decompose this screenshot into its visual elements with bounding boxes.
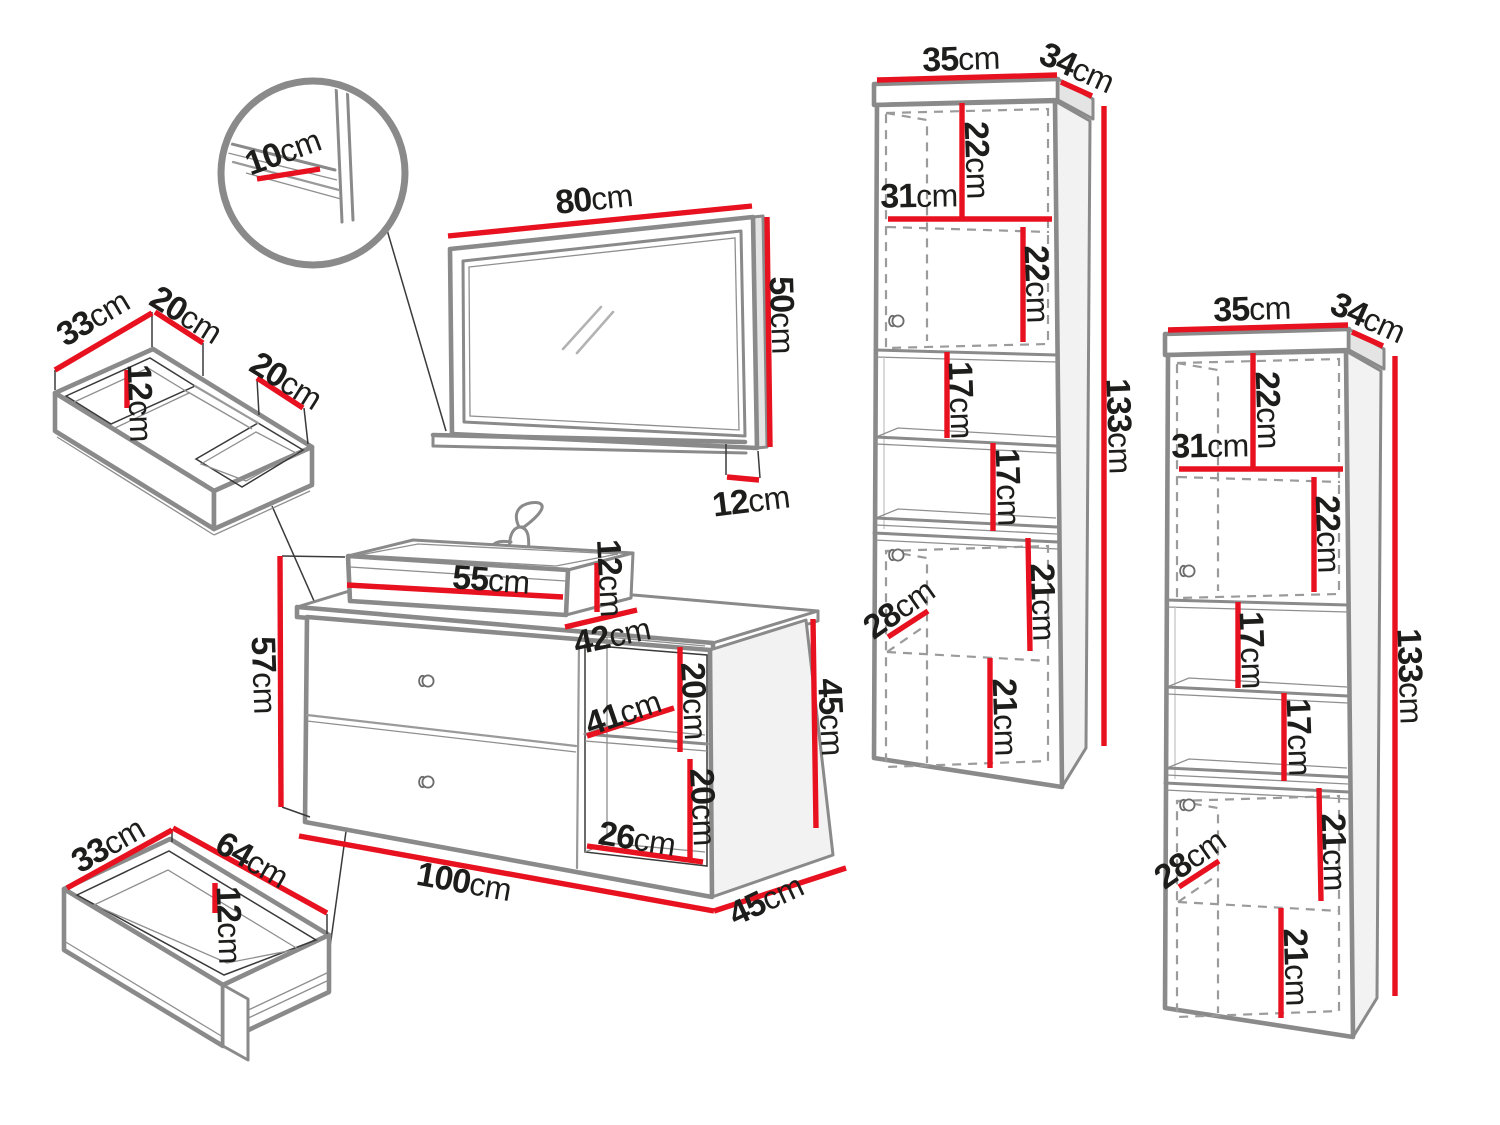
dim-label-tall-cabinet-2-open-shelf-height-1: 17cm xyxy=(1232,611,1273,690)
dim-label-tall-cabinet-1-inner-width: 31cm xyxy=(880,176,958,215)
dim-label-vanity-basin-width: 55cm xyxy=(451,558,531,601)
dim-label-tall-cabinet-1-height: 133cm xyxy=(1098,378,1139,475)
dim-label-vanity-upper-shelf-height: 20cm xyxy=(673,661,715,740)
dim-label-drawer-height: 12cm xyxy=(209,886,250,965)
dim-label-tall-cabinet-1-width: 35cm xyxy=(922,39,1001,80)
dim-label-vanity-total-height: 57cm xyxy=(244,636,285,715)
dim-label-tall-cabinet-1-open-shelf-height-1: 17cm xyxy=(941,361,982,440)
dim-label-mirror-height: 50cm xyxy=(762,276,803,355)
detail-callout-circle xyxy=(220,81,405,265)
dim-label-tall-cabinet-1-open-shelf-height-2: 17cm xyxy=(988,448,1029,527)
dim-label-corner-drawer-height: 12cm xyxy=(120,364,161,443)
dim-label-tall-cabinet-2-top-shelf-height: 22cm xyxy=(1248,371,1289,450)
dim-label-vanity-basin-height: 12cm xyxy=(589,538,631,617)
dim-label-tall-cabinet-1-lower-shelf-height-1: 21cm xyxy=(1023,563,1064,642)
dim-label-tall-cabinet-1-second-shelf-height: 22cm xyxy=(1017,245,1058,324)
dim-label-vanity-lower-shelf-height: 20cm xyxy=(682,767,724,846)
dim-label-vanity-side-height: 45cm xyxy=(810,677,852,756)
dim-label-tall-cabinet-1-top-shelf-height: 22cm xyxy=(957,121,998,200)
dim-label-tall-cabinet-2-lower-shelf-height-1: 21cm xyxy=(1314,813,1355,892)
dim-label-tall-cabinet-2-width: 35cm xyxy=(1213,289,1292,330)
furniture-dimension-diagram: 10cm80cm50cm12cm33cm20cm12cm20cm33cm64cm… xyxy=(0,0,1500,1125)
dim-label-tall-cabinet-2-height: 133cm xyxy=(1389,628,1430,725)
dim-label-tall-cabinet-2-lower-shelf-height-2: 21cm xyxy=(1276,928,1317,1007)
diagram-canvas: 10cm80cm50cm12cm33cm20cm12cm20cm33cm64cm… xyxy=(0,0,1500,1125)
dim-label-tall-cabinet-2-second-shelf-height: 22cm xyxy=(1308,495,1349,574)
dim-label-tall-cabinet-1-lower-shelf-height-2: 21cm xyxy=(985,678,1026,757)
dim-label-tall-cabinet-2-open-shelf-height-2: 17cm xyxy=(1279,698,1320,777)
dim-label-tall-cabinet-2-inner-width: 31cm xyxy=(1171,426,1249,465)
